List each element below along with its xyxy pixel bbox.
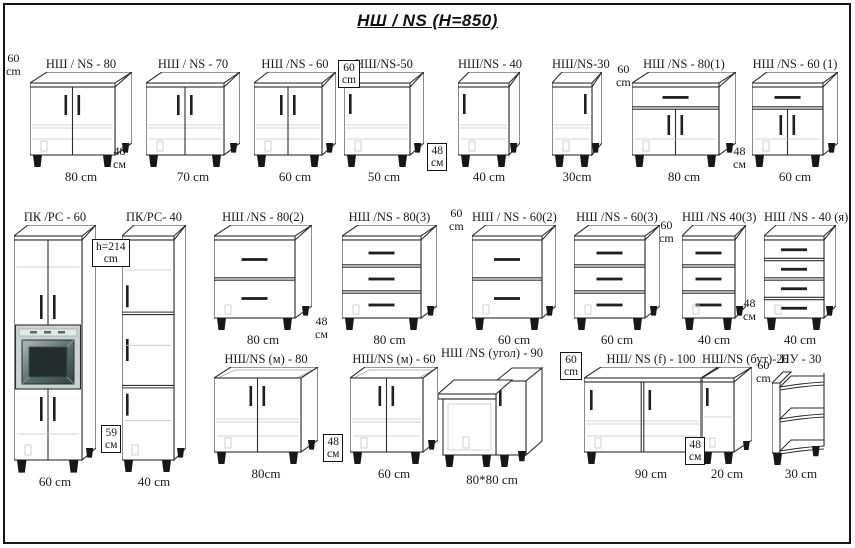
cabinet-dimension: 60 cm	[752, 169, 838, 185]
dimension-note: 48 см	[733, 145, 746, 170]
dimension-note-boxed: 59 см	[101, 425, 121, 453]
cabinet-label: НШ /NS - 60 (1)	[752, 57, 838, 72]
cabinet-item: НШ /NS - 60 (1)60 cm	[752, 57, 838, 185]
cabinet-label: НШ /NS - 80(3)	[342, 210, 437, 225]
cabinet-drawing	[472, 225, 556, 331]
cabinet-dimension: 60 cm	[254, 169, 336, 185]
dimension-note-boxed: 60 cm	[560, 352, 582, 380]
cabinet-item: ПК /РС - 6060 cm	[14, 210, 96, 490]
cabinet-dimension: 80cm	[214, 466, 318, 482]
cabinet-drawing	[632, 72, 736, 168]
cabinet-drawing	[772, 367, 830, 465]
page-title: НШ / NS (H=850)	[0, 11, 855, 31]
cabinet-drawing	[214, 367, 318, 465]
cabinet-drawing	[146, 72, 240, 168]
cabinet-dimension: 40 cm	[122, 474, 186, 490]
dimension-note: 60 cm	[616, 63, 631, 88]
cabinet-dimension: 30cm	[552, 169, 602, 185]
cabinet-drawing	[122, 225, 186, 473]
cabinet-drawing	[752, 72, 838, 168]
cabinet-drawing	[342, 225, 437, 331]
cabinet-dimension: 40 cm	[458, 169, 520, 185]
cabinet-label: НШ/ NS (f) - 100	[584, 352, 718, 367]
cabinet-label: НШ/NS - 40	[458, 57, 520, 72]
cabinet-item: НШ/NS-3030cm	[552, 57, 602, 185]
cabinet-item: НШ /NS (угол) - 9080*80 cm	[438, 346, 546, 488]
cabinet-drawing	[14, 225, 96, 473]
cabinet-item: НШ/NS (бут)-2020 cm	[702, 352, 752, 482]
cabinet-dimension: 40 cm	[764, 332, 836, 348]
dimension-note: 60 cm	[449, 207, 464, 232]
cabinet-label: НШ /NS (угол) - 90	[438, 346, 546, 361]
cabinet-item: ПК/РС- 4040 cm	[122, 210, 186, 490]
cabinet-dimension: 60 cm	[14, 474, 96, 490]
cabinet-dimension: 90 cm	[584, 466, 718, 482]
dimension-note-boxed: 48 см	[427, 143, 447, 171]
cabinet-drawing	[702, 367, 752, 465]
cabinet-drawing	[438, 361, 546, 471]
cabinet-dimension: 50 cm	[344, 169, 424, 185]
cabinet-item: НШ / NS - 60(2)60 cm	[472, 210, 556, 348]
cabinet-drawing	[682, 225, 746, 331]
cabinet-label: НШ/NS-30	[552, 57, 602, 72]
cabinet-dimension: 80 cm	[214, 332, 312, 348]
page-title-text: НШ / NS (H=850)	[357, 11, 498, 30]
cabinet-item: НШ /NS - 80(3)80 cm	[342, 210, 437, 348]
cabinet-label: ПК/РС- 40	[122, 210, 186, 225]
dimension-note: 60 cm	[659, 219, 674, 244]
dimension-note-boxed: 48 см	[685, 437, 705, 465]
dimension-note-boxed: 48 см	[323, 434, 343, 462]
dimension-note: 48 см	[315, 315, 328, 340]
cabinet-label: НУ - 30	[772, 352, 830, 367]
cabinet-label: НШ/NS (м) - 80	[214, 352, 318, 367]
cabinet-label: НШ /NS - 40 (я)	[764, 210, 836, 225]
cabinet-item: НШ /NS 40(3)40 cm	[682, 210, 746, 348]
cabinet-dimension: 30 cm	[772, 466, 830, 482]
cabinet-dimension: 80 cm	[342, 332, 437, 348]
dimension-note: 48 см	[113, 145, 126, 170]
cabinet-dimension: 60 cm	[350, 466, 438, 482]
cabinet-drawing	[350, 367, 438, 465]
cabinet-label: НШ /NS 40(3)	[682, 210, 746, 225]
cabinet-drawing	[458, 72, 520, 168]
cabinet-label: НШ / NS - 80	[30, 57, 132, 72]
cabinet-drawing	[764, 225, 836, 331]
cabinet-drawing	[552, 72, 602, 168]
diagram-canvas: НШ / NS (H=850) НШ / NS - 8080 cmНШ / NS…	[0, 0, 855, 548]
cabinet-item: НШ/NS - 4040 cm	[458, 57, 520, 185]
cabinet-dimension: 40 cm	[682, 332, 746, 348]
cabinet-item: НШ /NS - 80(2)80 cm	[214, 210, 312, 348]
cabinet-item: НШ /NS - 6060 cm	[254, 57, 336, 185]
cabinet-dimension: 20 cm	[702, 466, 752, 482]
cabinet-item: НУ - 3030 cm	[772, 352, 830, 482]
cabinet-label: НШ/NS (м) - 60	[350, 352, 438, 367]
dimension-note-boxed: 60 cm	[338, 60, 360, 88]
cabinet-item: НШ /NS - 40 (я)40 cm	[764, 210, 836, 348]
cabinet-item: НШ/NS (м) - 8080cm	[214, 352, 318, 482]
dimension-note: 48 см	[743, 297, 756, 322]
cabinet-label: НШ / NS - 70	[146, 57, 240, 72]
dimension-note: 60 cm	[756, 359, 771, 384]
dimension-note-boxed: h=214 cm	[92, 239, 130, 267]
cabinet-label: НШ /NS - 60(3)	[574, 210, 660, 225]
cabinet-label: НШ /NS - 80(1)	[632, 57, 736, 72]
cabinet-label: НШ /NS - 80(2)	[214, 210, 312, 225]
cabinet-drawing	[574, 225, 660, 331]
cabinet-dimension: 70 cm	[146, 169, 240, 185]
cabinet-drawing	[254, 72, 336, 168]
cabinet-label: НШ / NS - 60(2)	[472, 210, 556, 225]
cabinet-item: НШ /NS - 60(3)60 cm	[574, 210, 660, 348]
cabinet-dimension: 80 cm	[632, 169, 736, 185]
cabinet-drawing	[214, 225, 312, 331]
cabinet-label: НШ/NS (бут)-20	[702, 352, 752, 367]
cabinet-item: НШ / NS - 7070 cm	[146, 57, 240, 185]
cabinet-dimension: 60 cm	[574, 332, 660, 348]
cabinet-dimension: 80*80 cm	[438, 472, 546, 488]
cabinet-label: ПК /РС - 60	[14, 210, 96, 225]
cabinet-item: НШ/NS (м) - 6060 cm	[350, 352, 438, 482]
cabinet-item: НШ /NS - 80(1)80 cm	[632, 57, 736, 185]
cabinet-label: НШ /NS - 60	[254, 57, 336, 72]
cabinet-dimension: 80 cm	[30, 169, 132, 185]
dimension-note: 60 cm	[6, 52, 21, 77]
